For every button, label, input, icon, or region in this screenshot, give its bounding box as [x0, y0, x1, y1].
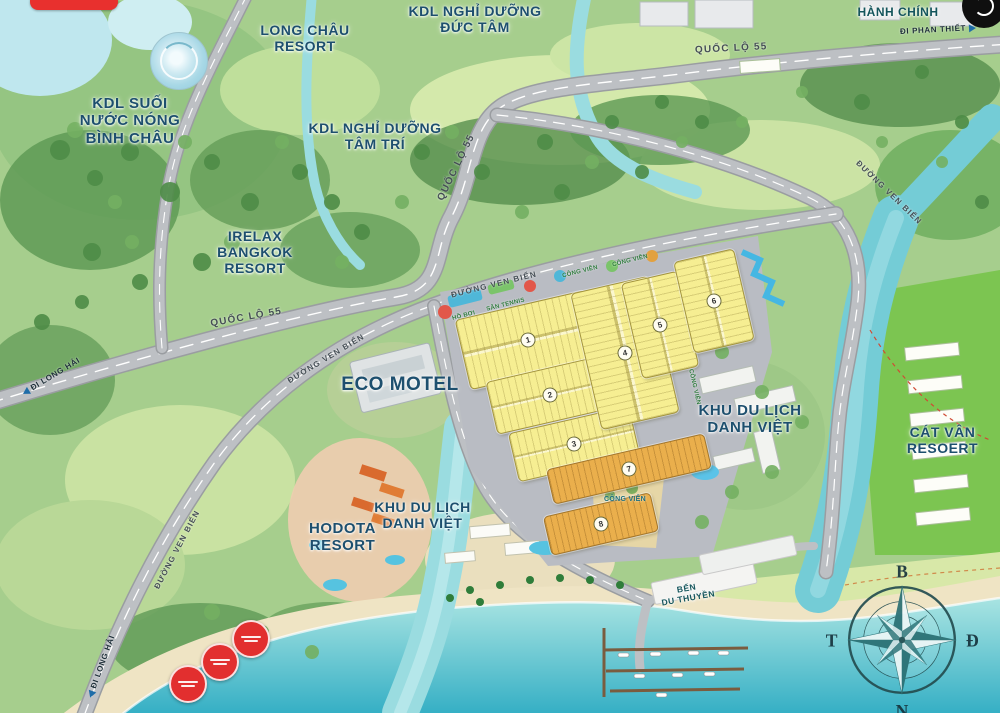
logo-banner [30, 0, 118, 10]
label-hanh-chinh: HÀNH CHÍNH [838, 6, 958, 20]
label-eco-motel: ECO MOTEL [330, 374, 470, 396]
compass-rose: B Đ N T [822, 560, 982, 713]
lot-number: 3 [565, 435, 583, 453]
beach-marker-badge [169, 665, 207, 703]
label-irelax-bangkok: IRELAX BANGKOK RESORT [195, 228, 315, 276]
lot-number: 5 [651, 316, 669, 334]
label-duc-tam: KDL NGHỈ DƯỠNG ĐỨC TÂM [395, 3, 555, 35]
label-cong-vien: CÔNG VIÊN [604, 496, 646, 503]
label-binh-chau-resort: KDL SUỐI NƯỚC NÓNG BÌNH CHÂU [55, 95, 205, 147]
lot-number: 6 [705, 292, 723, 310]
lot-number: 4 [616, 344, 634, 362]
hot-spring-spiral-pool [150, 32, 208, 90]
compass-south-label: N [896, 701, 909, 713]
compass-north-label: B [896, 562, 908, 582]
label-long-chau-resort: LONG CHÂU RESORT [240, 22, 370, 54]
lot-number: 7 [620, 460, 638, 478]
compass-west-label: T [826, 630, 838, 650]
label-danh-viet-east: KHU DU LỊCH DANH VIỆT [685, 402, 815, 437]
label-cat-van-resort: CÁT VÂN RESOERT [890, 424, 995, 456]
resort-master-plan-map: 1 2 3 4 5 6 7 8 KDL SUỐI NƯỚC NÓNG BÌNH … [0, 0, 1000, 713]
beach-marker-badge [232, 620, 270, 658]
compass-east-label: Đ [966, 630, 979, 650]
beach-marker-badge [201, 643, 239, 681]
label-danh-viet-beach: KHU DU LỊCH DANH VIỆT [360, 499, 485, 531]
label-tam-tri: KDL NGHỈ DƯỠNG TÂM TRÍ [295, 120, 455, 152]
spiral-ring [160, 42, 198, 80]
lot-number: 2 [541, 386, 559, 404]
lot-number: 8 [592, 515, 610, 533]
logo-badge-glyph [974, 0, 994, 16]
lot-number: 1 [519, 331, 537, 349]
